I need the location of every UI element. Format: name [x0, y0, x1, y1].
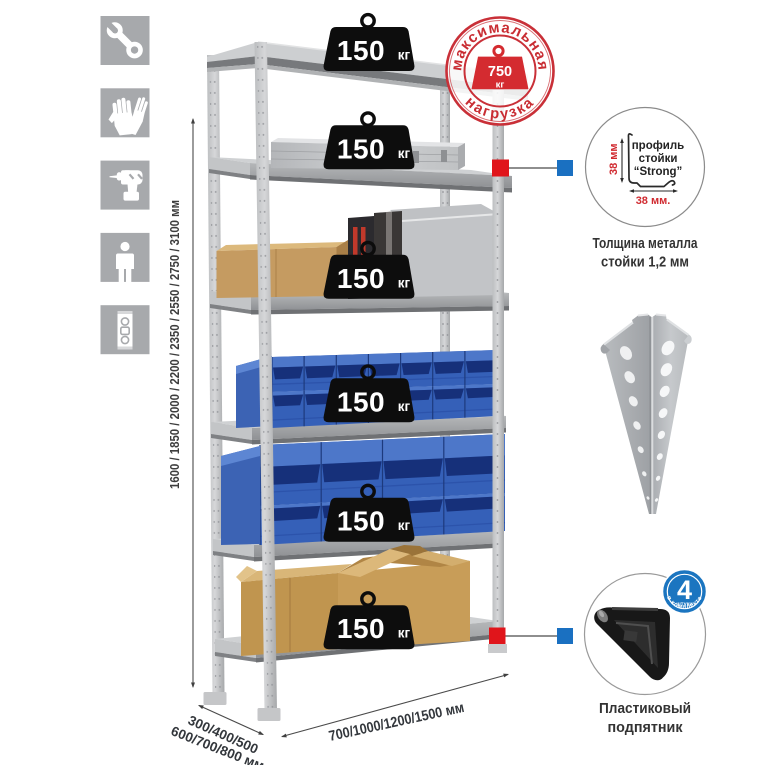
svg-text:стойки: стойки [639, 153, 678, 165]
svg-text:150: 150 [337, 386, 385, 417]
svg-text:кг: кг [398, 626, 411, 641]
svg-text:150: 150 [337, 263, 385, 294]
svg-text:150: 150 [337, 613, 385, 644]
svg-text:1600 / 1850 / 2000 / 2200 / 23: 1600 / 1850 / 2000 / 2200 / 2350 / 2550 … [168, 200, 182, 489]
svg-text:750: 750 [488, 64, 512, 80]
svg-text:кг: кг [398, 275, 411, 290]
svg-text:150: 150 [337, 133, 385, 164]
svg-text:кг: кг [398, 48, 411, 63]
svg-text:38 мм.: 38 мм. [636, 195, 671, 207]
svg-text:кг: кг [398, 518, 411, 533]
svg-text:кг: кг [398, 399, 411, 414]
svg-text:профиль: профиль [632, 140, 685, 152]
svg-text:Пластиковый: Пластиковый [599, 701, 691, 717]
svg-text:150: 150 [337, 506, 385, 537]
svg-text:кг: кг [398, 146, 411, 161]
svg-text:Толщина металла: Толщина металла [593, 236, 699, 252]
svg-text:150: 150 [337, 35, 385, 66]
svg-text:4: 4 [677, 575, 692, 605]
svg-text:кг: кг [496, 80, 505, 91]
svg-text:подпятник: подпятник [608, 720, 684, 736]
svg-text:стойки 1,2 мм: стойки 1,2 мм [601, 255, 689, 271]
svg-text:“Strong”: “Strong” [634, 166, 683, 178]
svg-text:38 мм: 38 мм [608, 143, 620, 175]
